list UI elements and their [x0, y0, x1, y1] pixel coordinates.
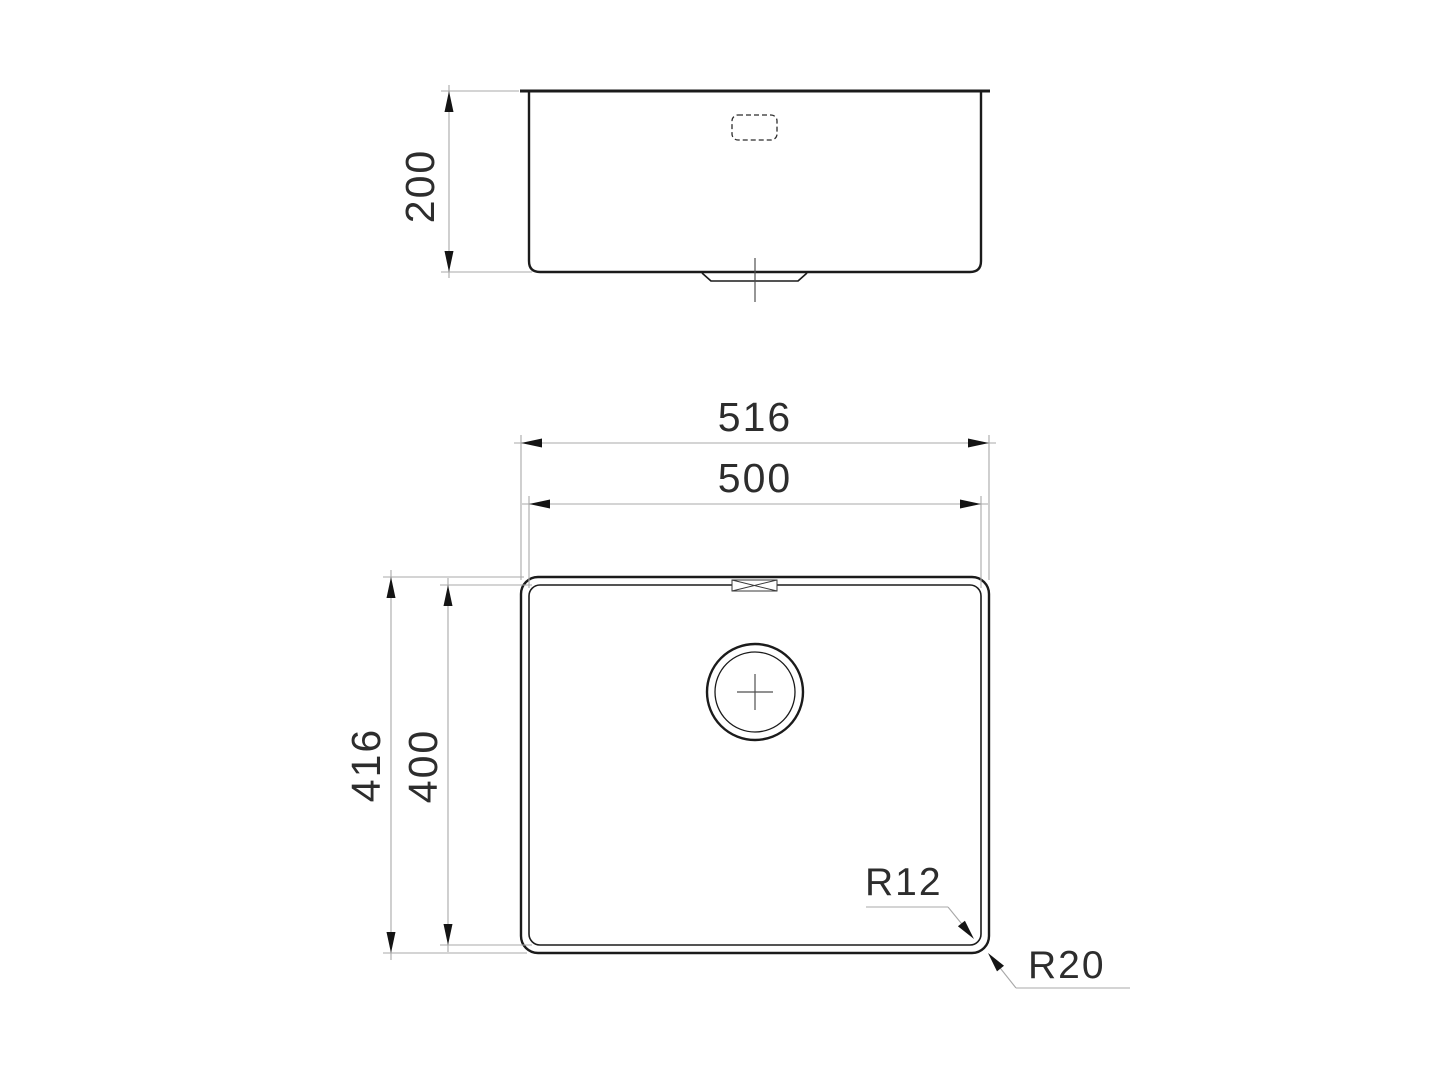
overflow-hole-hidden-outline [732, 115, 777, 140]
dimension-label-516: 516 [718, 394, 792, 440]
arrowhead-516-right [968, 439, 989, 448]
radius-callout-r20: R20 [988, 944, 1130, 988]
dimension-200: 200 [397, 85, 532, 278]
arrowhead-416-down [387, 932, 396, 953]
dimension-400: 400 [400, 578, 532, 952]
plan-view: 516 500 416 400 [343, 394, 1130, 988]
arrowhead-400-down [444, 924, 453, 945]
arrowhead-416-up [387, 577, 396, 598]
side-elevation-view: 200 [397, 85, 990, 302]
dimension-label-416: 416 [343, 728, 389, 802]
arrowhead-400-up [444, 585, 453, 606]
sink-dimension-drawing: 200 516 [0, 0, 1440, 1080]
radius-label-r12: R12 [865, 861, 943, 904]
drain-hole [707, 644, 803, 740]
dimension-label-500: 500 [718, 455, 792, 501]
dimension-500: 500 [522, 455, 988, 588]
dimension-label-200: 200 [397, 149, 443, 223]
arrowhead-200-up [445, 91, 454, 112]
radius-callout-r12: R12 [865, 861, 974, 939]
leader-arrowhead-r12 [958, 921, 974, 939]
arrowhead-500-left [529, 500, 550, 509]
bowl-profile-outline [529, 92, 981, 272]
technical-drawing-page: 200 516 [0, 0, 1440, 1080]
leader-arrowhead-r20 [988, 953, 1004, 971]
arrowhead-500-right [960, 500, 981, 509]
arrowhead-516-left [521, 439, 542, 448]
arrowhead-200-down [445, 251, 454, 272]
overflow-slot-mark [732, 580, 777, 591]
radius-label-r20: R20 [1028, 944, 1106, 987]
dimension-label-400: 400 [400, 729, 446, 803]
